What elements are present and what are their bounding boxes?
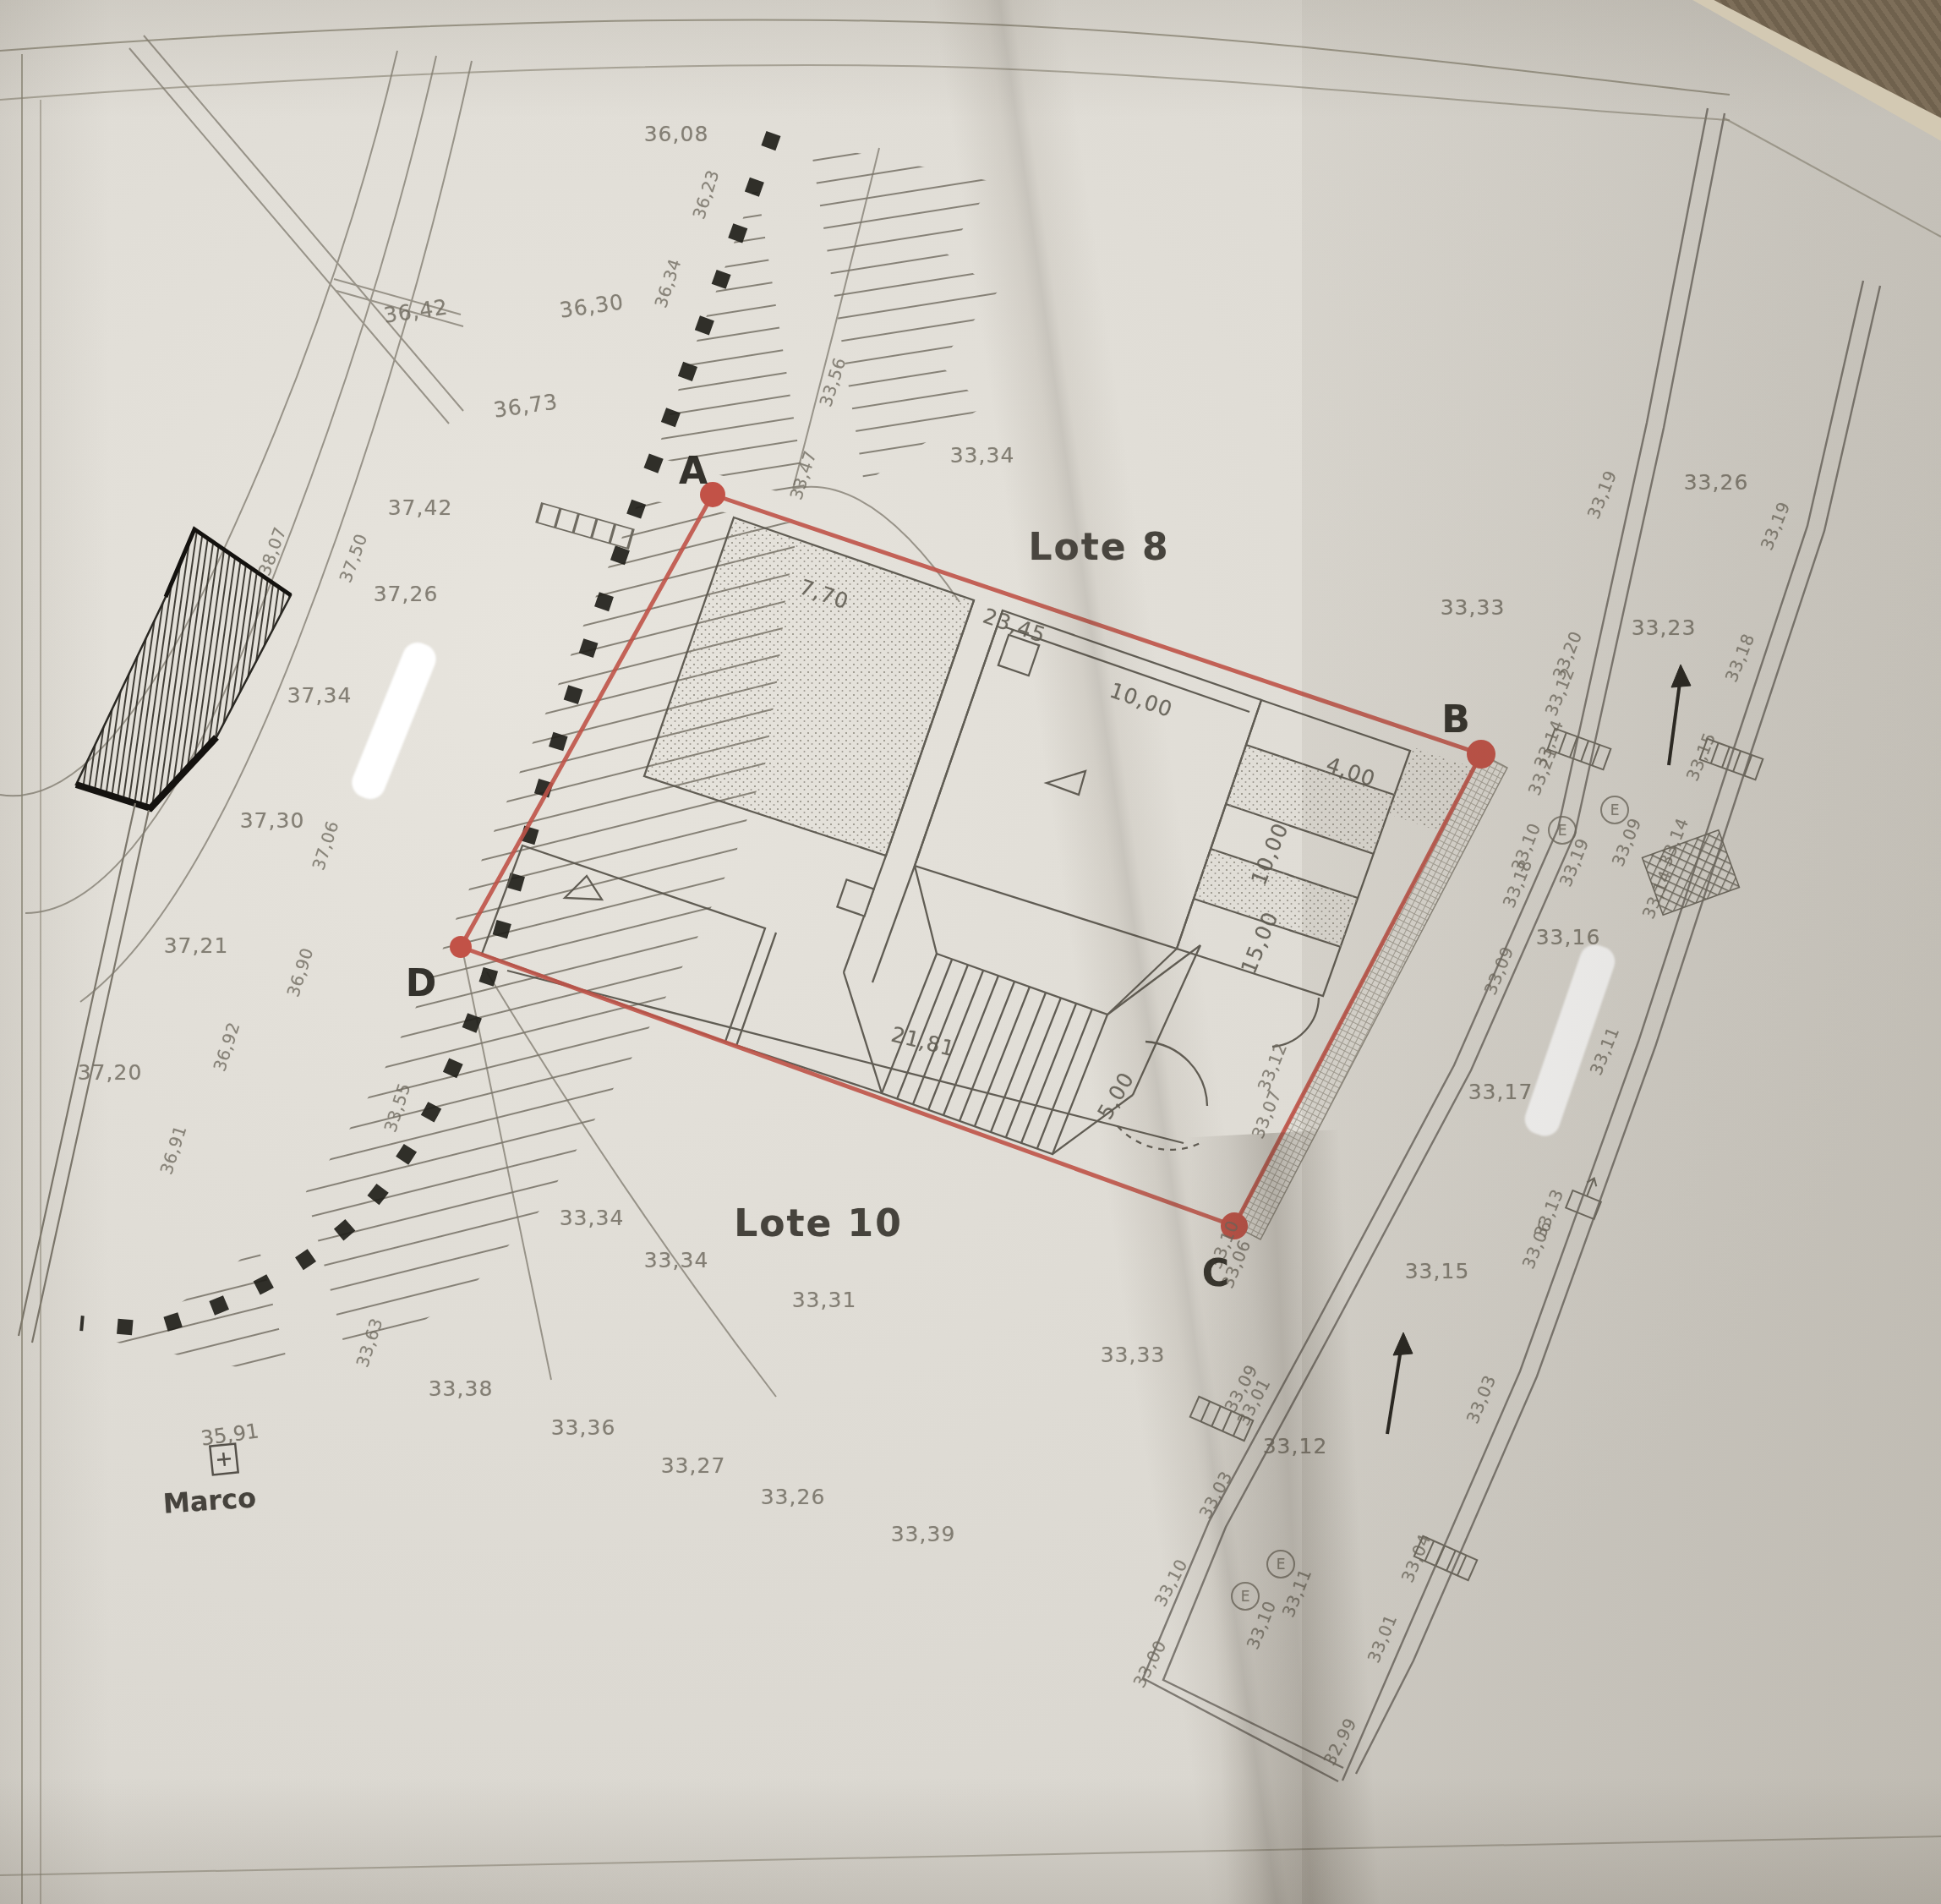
- corner-point-A: [700, 482, 725, 507]
- fold-shadow: [0, 0, 1941, 118]
- fold-shadow: [0, 0, 110, 1904]
- survey-plan-photo: 36,0836,4236,3036,7337,4237,2637,3437,30…: [0, 0, 1941, 1904]
- fold-shadow: [0, 1777, 1941, 1904]
- marco-benchmark-symbol: [210, 1444, 238, 1475]
- fold-shadow: [1302, 0, 1941, 1904]
- corner-point-D: [450, 936, 472, 958]
